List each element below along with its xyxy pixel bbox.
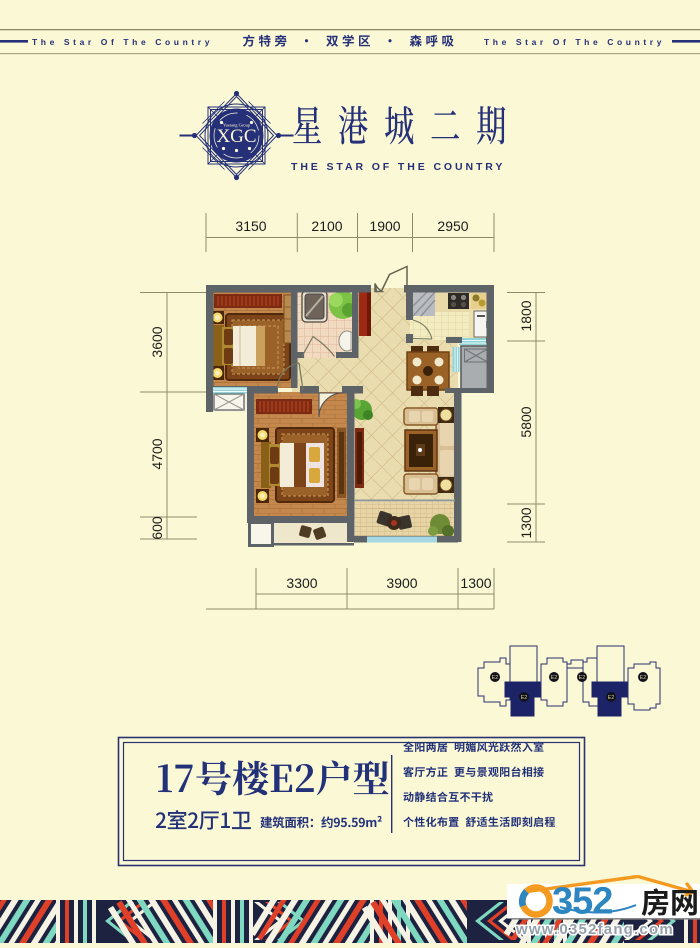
svg-text:www.0352fang.com: www.0352fang.com	[515, 921, 674, 938]
svg-text:352: 352	[552, 881, 612, 923]
